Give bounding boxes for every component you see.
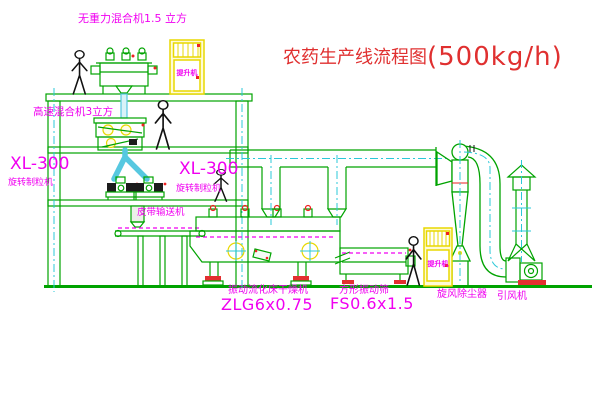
exhaust-header-ducts bbox=[226, 150, 448, 225]
y-chute bbox=[114, 150, 147, 179]
top-mixer-label: 无重力混合机1.5 立方 bbox=[78, 13, 187, 25]
worker-top-floor bbox=[72, 51, 87, 94]
belt-conveyor-drawing bbox=[115, 206, 205, 286]
mid-mixer-drawing bbox=[94, 94, 146, 150]
elevator-right-label: 提升机 bbox=[427, 261, 449, 268]
worker-middle-floor bbox=[155, 101, 170, 149]
bucket-elevator-top bbox=[170, 40, 204, 94]
title-text: 农药生产线流程图 bbox=[283, 45, 427, 71]
top-mixer-drawing bbox=[91, 48, 157, 94]
granulator-right-name-label: 旋转制粒机 bbox=[176, 185, 221, 194]
fluid-bed-dryer-drawing bbox=[190, 206, 340, 286]
mid-mixer-label: 高速混合机3立方 bbox=[33, 107, 113, 118]
fan-label: 引风机 bbox=[497, 292, 527, 303]
cyclone-label: 旋风除尘器 bbox=[437, 290, 487, 301]
belt-conveyor-label: 皮带输送机 bbox=[137, 208, 185, 218]
diagram-title: 农药生产线流程图 (500kg/h) bbox=[283, 44, 563, 71]
title-capacity: (500kg/h) bbox=[427, 44, 563, 71]
granulator-left-name-label: 旋转制粒机 bbox=[8, 179, 53, 188]
granulator-right-model-label: XL-300 bbox=[179, 161, 238, 179]
granulator-left-model-label: XL-300 bbox=[10, 156, 69, 174]
screen-model-label: FS0.6x1.5 bbox=[330, 296, 414, 313]
fan-stack-drawing bbox=[506, 160, 546, 285]
dryer-model-label: ZLG6x0.75 bbox=[221, 297, 313, 314]
elevator-top-label: 提升机 bbox=[176, 70, 198, 77]
bucket-elevator-right bbox=[424, 228, 452, 286]
pesticide-line-flow-diagram: 农药生产线流程图 (500kg/h) 无重力混合机1.5 立方 高速混合机3立方… bbox=[0, 0, 600, 403]
vibrating-screen-drawing bbox=[335, 248, 415, 284]
